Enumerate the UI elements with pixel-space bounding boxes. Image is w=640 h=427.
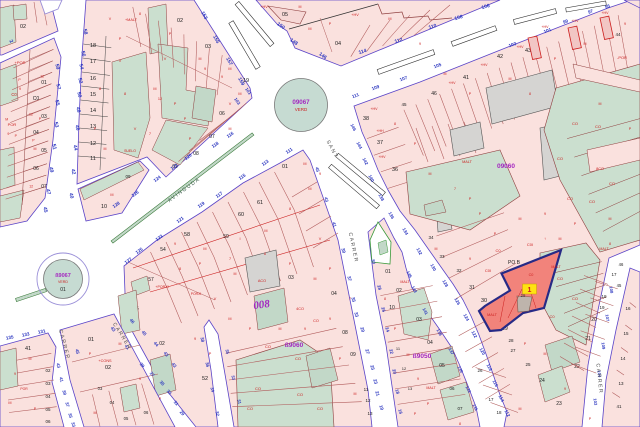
svg-text:9: 9 [417, 377, 419, 381]
svg-text:M: M [388, 17, 391, 21]
svg-text:C0: C0 [549, 314, 555, 319]
svg-text:P: P [329, 267, 332, 271]
svg-text:V: V [319, 237, 322, 241]
svg-text:06: 06 [144, 410, 149, 415]
svg-text:03: 03 [288, 275, 294, 281]
svg-text:34: 34 [428, 235, 434, 240]
svg-text:17: 17 [90, 59, 96, 65]
svg-text:13: 13 [618, 381, 624, 386]
svg-text:+HV: +HV [351, 13, 359, 17]
svg-text:C0: C0 [529, 273, 534, 277]
svg-text:CO: CO [589, 199, 595, 204]
svg-text:24: 24 [539, 378, 545, 384]
svg-text:CO: CO [572, 121, 578, 126]
svg-text:CO: CO [265, 344, 271, 349]
svg-text:37: 37 [377, 140, 383, 146]
svg-text:P: P [469, 197, 472, 201]
svg-text:M: M [303, 162, 306, 166]
svg-text:M: M [228, 67, 231, 71]
svg-text:9: 9 [624, 22, 626, 26]
svg-text:CO: CO [247, 406, 253, 411]
svg-text:03: 03 [45, 381, 51, 386]
svg-text:25: 25 [525, 362, 531, 367]
svg-text:12: 12 [90, 141, 96, 147]
svg-text:04: 04 [427, 340, 433, 346]
svg-text:C0I: C0I [527, 242, 533, 247]
svg-text:03: 03 [41, 114, 47, 120]
svg-text:9: 9 [544, 212, 546, 216]
svg-text:8: 8 [264, 252, 266, 256]
svg-text:7: 7 [229, 257, 231, 261]
svg-text:09060: 09060 [497, 163, 515, 170]
svg-text:V: V [229, 102, 232, 106]
svg-text:45: 45 [617, 283, 622, 288]
svg-text:54: 54 [160, 247, 166, 253]
svg-text:17: 17 [611, 272, 617, 277]
svg-text:M: M [544, 352, 547, 356]
svg-text:41: 41 [25, 346, 31, 352]
svg-text:03: 03 [416, 317, 422, 323]
svg-text:C0: C0 [495, 248, 501, 253]
svg-text:02: 02 [159, 341, 165, 347]
svg-text:+MALT: +MALT [125, 18, 138, 22]
svg-text:01: 01 [88, 337, 94, 343]
svg-text:V: V [134, 127, 137, 131]
svg-text:MALT: MALT [400, 280, 410, 284]
svg-text:8: 8 [99, 87, 101, 91]
svg-text:06: 06 [219, 111, 225, 117]
svg-text:02: 02 [20, 24, 26, 30]
svg-text:M: M [264, 229, 267, 233]
svg-text:8: 8 [384, 297, 386, 301]
svg-text:ß9067: ß9067 [55, 273, 71, 279]
svg-text:8: 8 [124, 92, 126, 96]
svg-text:13: 13 [408, 386, 413, 391]
svg-text:27: 27 [510, 348, 516, 353]
svg-text:04: 04 [335, 41, 341, 47]
svg-text:45: 45 [401, 102, 407, 107]
svg-text:C0: C0 [11, 92, 17, 97]
svg-text:CO: CO [255, 386, 261, 391]
svg-text:12: 12 [402, 366, 407, 371]
svg-text:16: 16 [90, 76, 96, 82]
svg-text:M: M [299, 5, 302, 9]
svg-text:9: 9 [329, 317, 331, 321]
svg-text:8: 8 [179, 267, 181, 271]
svg-text:109: 109 [601, 342, 607, 350]
svg-text:C0: C0 [33, 96, 40, 102]
svg-text:9: 9 [7, 132, 9, 136]
svg-text:V: V [164, 57, 167, 61]
svg-text:M: M [238, 92, 241, 96]
svg-text:ß9060: ß9060 [285, 342, 304, 349]
svg-text:M: M [5, 118, 8, 122]
svg-text:05: 05 [439, 363, 445, 369]
svg-text:I: I [239, 237, 240, 241]
svg-text:ß9050: ß9050 [413, 353, 432, 360]
svg-text:M: M [199, 57, 202, 61]
svg-text:+HV: +HV [370, 107, 378, 111]
svg-text:V: V [214, 297, 217, 301]
svg-text:18: 18 [496, 410, 502, 415]
svg-text:9: 9 [194, 337, 196, 341]
svg-text:M: M [279, 327, 282, 331]
svg-text:41: 41 [463, 75, 469, 81]
svg-text:+POR: +POR [14, 60, 25, 65]
svg-text:M: M [519, 407, 522, 411]
svg-text:8: 8 [529, 92, 531, 96]
svg-text:06: 06 [33, 166, 39, 172]
svg-text:+HV: +HV [516, 45, 524, 49]
svg-text:04: 04 [331, 291, 337, 297]
svg-text:23: 23 [556, 401, 562, 407]
svg-text:MALT: MALT [462, 160, 473, 164]
svg-text:M: M [8, 401, 11, 405]
svg-text:01: 01 [41, 80, 47, 86]
svg-text:03: 03 [98, 386, 103, 391]
svg-text:19: 19 [599, 305, 605, 310]
svg-text:M: M [444, 72, 447, 76]
svg-text:02: 02 [396, 288, 402, 294]
svg-text:P: P [189, 137, 192, 141]
svg-text:CO: CO [609, 181, 615, 186]
svg-text:06: 06 [45, 419, 51, 424]
svg-text:9: 9 [139, 377, 141, 381]
svg-text:M: M [34, 147, 37, 151]
svg-text:M: M [229, 127, 232, 131]
svg-text:8CO: 8CO [596, 167, 604, 171]
svg-text:M: M [153, 87, 156, 91]
svg-text:↑: ↑ [544, 236, 546, 241]
svg-text:CO: CO [567, 196, 573, 201]
svg-text:9: 9 [564, 387, 566, 391]
svg-text:+HH: +HH [376, 129, 384, 133]
svg-text:M: M [29, 357, 32, 361]
svg-text:P: P [209, 352, 212, 356]
svg-text:08: 08 [342, 330, 348, 336]
svg-text:10: 10 [389, 305, 395, 311]
svg-text:M: M [435, 247, 438, 251]
svg-text:02: 02 [45, 368, 51, 373]
svg-text:12: 12 [40, 74, 44, 78]
svg-text:M: M [110, 193, 113, 197]
svg-text:58: 58 [184, 232, 190, 238]
svg-text:12: 12 [158, 97, 162, 101]
svg-text:POR: POR [8, 122, 17, 127]
svg-text:9: 9 [204, 67, 206, 71]
svg-text:04: 04 [45, 394, 51, 399]
svg-text:7: 7 [149, 132, 151, 136]
svg-text:8: 8 [459, 422, 461, 426]
svg-text:MALT: MALT [551, 265, 561, 269]
svg-text:4CO: 4CO [296, 307, 304, 311]
svg-text:M: M [308, 187, 311, 191]
svg-text:VERD: VERD [295, 107, 308, 112]
svg-text:M: M [609, 217, 612, 221]
svg-text:11: 11 [364, 387, 369, 392]
svg-text:05: 05 [41, 148, 47, 154]
svg-text:17: 17 [488, 397, 494, 402]
svg-text:9: 9 [304, 327, 306, 331]
svg-text:05: 05 [282, 12, 288, 18]
svg-text:31: 31 [469, 285, 475, 291]
svg-text:14: 14 [620, 356, 626, 361]
svg-text:C0I: C0I [485, 268, 491, 273]
svg-text:57: 57 [148, 277, 154, 283]
svg-text:P: P [174, 102, 177, 106]
svg-text:28: 28 [508, 338, 514, 343]
svg-text:M: M [559, 237, 562, 241]
svg-text:60: 60 [238, 212, 244, 218]
svg-text:13: 13 [367, 411, 373, 416]
svg-text:30: 30 [481, 298, 487, 304]
svg-text:07: 07 [457, 406, 463, 411]
svg-text:8: 8 [289, 207, 291, 211]
svg-text:09: 09 [125, 174, 131, 179]
svg-text:CO: CO [595, 124, 601, 129]
svg-text:MALT: MALT [599, 247, 609, 251]
svg-text:38: 38 [363, 116, 369, 122]
svg-text:M: M [519, 217, 522, 221]
svg-text:P: P [119, 37, 122, 41]
svg-text:M: M [104, 147, 107, 151]
svg-text:61: 61 [257, 200, 263, 206]
svg-text:MALT: MALT [487, 313, 498, 317]
svg-text:05: 05 [45, 407, 51, 412]
svg-text:11: 11 [90, 156, 96, 162]
svg-text:008: 008 [253, 298, 272, 312]
svg-text:09067: 09067 [292, 99, 310, 106]
svg-text:42: 42 [497, 54, 503, 60]
svg-text:36: 36 [392, 167, 398, 173]
svg-text:+HV: +HV [480, 63, 488, 67]
svg-text:1: 1 [528, 287, 532, 294]
svg-text:CO: CO [313, 319, 319, 323]
svg-text:M: M [314, 277, 317, 281]
svg-text:9: 9 [469, 257, 471, 261]
svg-text:V: V [119, 59, 122, 63]
svg-text:15: 15 [623, 331, 629, 336]
svg-text:12: 12 [29, 113, 33, 117]
svg-text:+HV: +HV [571, 19, 579, 23]
svg-text:18: 18 [90, 43, 96, 49]
svg-text:M: M [234, 272, 237, 276]
svg-text:01: 01 [60, 287, 66, 293]
svg-text:-POR: -POR [617, 55, 627, 60]
svg-text:01: 01 [385, 269, 391, 275]
svg-text:ACO: ACO [258, 279, 266, 283]
svg-text:M: M [584, 42, 587, 46]
svg-text:CO: CO [297, 392, 303, 397]
svg-text:9: 9 [19, 87, 21, 91]
svg-text:M: M [228, 317, 231, 321]
svg-text:M: M [509, 77, 512, 81]
svg-text:10: 10 [101, 204, 107, 210]
svg-text:CO: CO [557, 156, 563, 161]
svg-text:9: 9 [174, 242, 176, 246]
svg-text:08: 08 [193, 151, 199, 157]
svg-text:CO: CO [317, 406, 323, 411]
svg-text:46: 46 [619, 262, 624, 267]
svg-text:09: 09 [350, 352, 356, 358]
svg-text:107: 107 [605, 314, 611, 322]
svg-text:8: 8 [394, 122, 396, 126]
svg-text:+HV: +HV [378, 155, 386, 159]
svg-text:+HV: +HV [448, 81, 456, 85]
svg-text:+PORXI: +PORXI [155, 285, 168, 289]
svg-text:12: 12 [29, 184, 33, 188]
svg-text:7: 7 [454, 187, 456, 191]
svg-text:9: 9 [319, 172, 321, 176]
svg-text:CO: CO [572, 296, 578, 301]
svg-text:M: M [119, 342, 122, 346]
svg-text:VERD: VERD [58, 280, 68, 284]
svg-text:M: M [203, 247, 206, 251]
svg-text:M: M [94, 411, 97, 415]
svg-text:07: 07 [209, 134, 215, 140]
svg-text:46: 46 [431, 91, 437, 97]
svg-text:05: 05 [124, 416, 129, 421]
svg-text:+CONS: +CONS [98, 359, 112, 363]
svg-text:+HV: +HV [260, 5, 268, 9]
svg-text:POR: POR [20, 387, 28, 391]
svg-text:8: 8 [139, 12, 141, 16]
svg-text:M: M [407, 353, 410, 357]
svg-text:04: 04 [33, 130, 39, 136]
svg-text:16: 16 [625, 306, 631, 311]
svg-text:PORXI: PORXI [191, 292, 202, 296]
svg-text:8: 8 [609, 242, 611, 246]
svg-text:MALT: MALT [426, 386, 436, 390]
svg-text:41: 41 [616, 404, 622, 409]
svg-text:9: 9 [14, 372, 16, 376]
svg-text:M: M [308, 27, 311, 31]
svg-text:M: M [429, 172, 432, 176]
svg-text:02: 02 [105, 365, 111, 371]
svg-text:9: 9 [419, 42, 421, 46]
svg-text:26: 26 [477, 368, 483, 373]
svg-text:44: 44 [615, 32, 621, 37]
svg-text:PO B: PO B [508, 260, 521, 266]
svg-text:14: 14 [90, 108, 96, 114]
svg-text:04: 04 [110, 400, 115, 405]
svg-text:CO: CO [295, 356, 301, 361]
svg-text:15: 15 [90, 92, 96, 98]
svg-text:59: 59 [223, 234, 229, 240]
svg-text:+HV: +HV [601, 11, 609, 15]
svg-text:02: 02 [177, 18, 183, 24]
svg-text:03: 03 [205, 44, 211, 50]
svg-text:52: 52 [202, 376, 208, 382]
svg-text:CO: CO [557, 276, 563, 281]
svg-text:SUELO: SUELO [124, 149, 136, 153]
svg-text:9: 9 [221, 75, 223, 79]
svg-text:M: M [354, 392, 357, 396]
svg-text:103: 103 [593, 398, 599, 406]
svg-text:33: 33 [439, 254, 445, 259]
svg-text:32: 32 [456, 268, 462, 273]
svg-text:01: 01 [282, 164, 288, 170]
svg-text:12: 12 [365, 398, 371, 403]
svg-text:06: 06 [449, 386, 455, 391]
svg-text:M: M [599, 102, 602, 106]
svg-text:108: 108 [609, 286, 615, 294]
